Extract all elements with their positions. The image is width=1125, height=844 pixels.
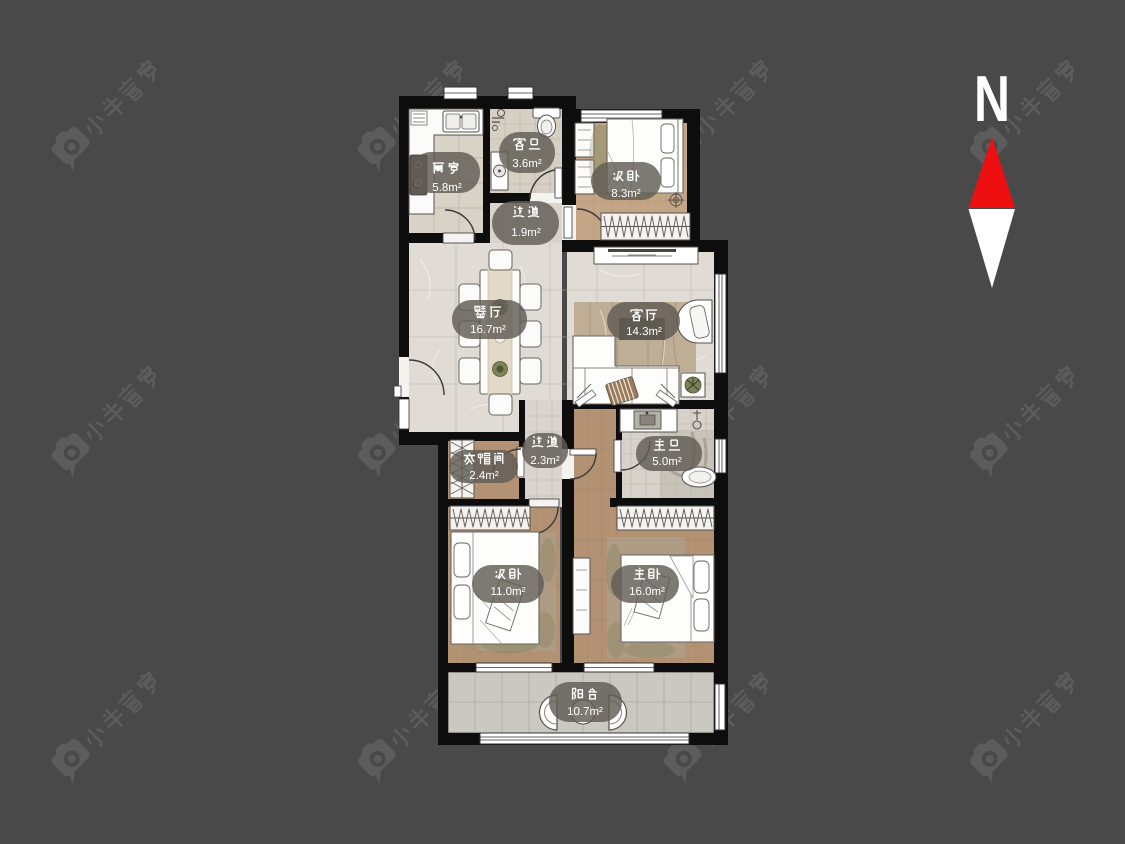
svg-text:11.0m²: 11.0m² [491,586,526,598]
svg-text:N: N [974,62,1010,135]
svg-text:1.9m²: 1.9m² [511,227,541,239]
svg-text:16.7m²: 16.7m² [470,324,506,336]
svg-text:5.8m²: 5.8m² [432,182,462,194]
svg-text:2.4m²: 2.4m² [469,470,499,482]
svg-text:2.3m²: 2.3m² [530,455,560,467]
svg-text:16.0m²: 16.0m² [629,586,665,598]
svg-text:8.3m²: 8.3m² [611,188,641,200]
svg-text:3.6m²: 3.6m² [512,158,542,170]
svg-text:10.7m²: 10.7m² [567,706,603,718]
svg-text:5.0m²: 5.0m² [652,456,682,468]
svg-text:14.3m²: 14.3m² [626,326,662,338]
